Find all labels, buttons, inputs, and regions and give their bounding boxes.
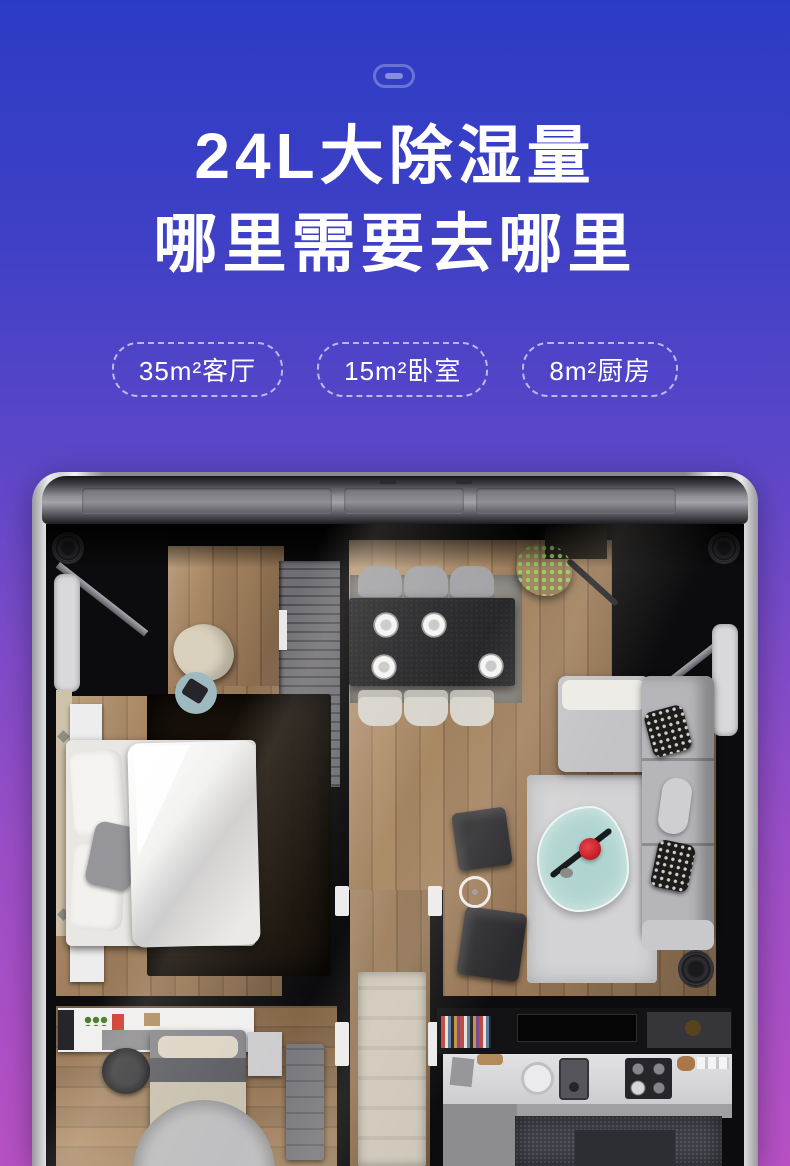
device-top-band	[42, 476, 748, 524]
floor-speaker-icon	[680, 952, 712, 986]
title-line-2: 哪里需要去哪里	[0, 200, 790, 288]
cutting-board	[477, 1054, 503, 1065]
ottoman	[457, 906, 528, 982]
badge-bedroom-area: 15m²卧室	[317, 342, 488, 397]
storage-bench	[286, 1044, 324, 1160]
promo-page: 24L大除湿量 哪里需要去哪里 35m²客厅 15m²卧室 8m²厨房	[0, 0, 790, 1166]
place-setting	[371, 654, 397, 680]
badge-kitchen-area: 8m²厨房	[522, 342, 678, 397]
counter-appliance	[559, 1058, 589, 1100]
bed2-fold	[150, 1058, 246, 1082]
place-setting	[373, 612, 399, 638]
tv-panel	[517, 1014, 637, 1042]
dining-chair	[404, 690, 448, 726]
handle-recess-right	[712, 624, 738, 736]
duvet-fold	[134, 745, 194, 857]
desk-plants	[84, 1016, 108, 1026]
nightstand-small	[248, 1032, 282, 1076]
bedroom-south-wall	[56, 996, 340, 1006]
dining-chair	[358, 690, 402, 726]
light-center	[472, 889, 478, 895]
band-panel	[82, 488, 332, 514]
gas-hob	[625, 1058, 672, 1099]
book-row	[441, 1016, 491, 1048]
place-setting	[421, 612, 447, 638]
door-jamb	[335, 1022, 349, 1066]
kitchen-island-mat	[515, 1116, 722, 1166]
apartment-floorplan-render	[32, 472, 758, 1166]
ceiling-light-ring	[459, 876, 491, 908]
door-jamb	[335, 886, 349, 916]
rug-item	[181, 678, 209, 705]
console-shelf	[647, 1012, 731, 1048]
kitchen-floor-side	[443, 1104, 517, 1166]
desk-red-item	[112, 1014, 124, 1030]
media-console-wall	[437, 1008, 732, 1054]
dining-chair	[450, 690, 494, 726]
desk-wood-box	[144, 1013, 160, 1026]
ceiling-shadow	[46, 524, 744, 568]
sofa-chaise	[558, 676, 650, 772]
sofa-cushion	[562, 680, 646, 710]
door-jamb	[428, 886, 442, 916]
shelf-plant	[685, 1020, 701, 1036]
area-badges: 35m²客厅 15m²卧室 8m²厨房	[0, 342, 790, 397]
coffee-table-glass	[537, 806, 629, 912]
badge-living-room-area: 35m²客厅	[112, 342, 283, 397]
dehumidifier-outline-icon	[373, 64, 415, 88]
decor-stone	[560, 868, 573, 878]
island-inner	[575, 1130, 675, 1166]
ottoman	[451, 807, 513, 872]
office-chair	[102, 1048, 150, 1094]
counter-box	[450, 1057, 475, 1087]
appliance-knob	[569, 1082, 579, 1092]
title-line-1: 24L大除湿量	[0, 112, 790, 200]
hall-runner-rug	[358, 972, 426, 1166]
icon-vent-bar	[385, 73, 403, 79]
handle-recess-left	[54, 574, 80, 692]
red-flowers	[579, 838, 601, 860]
sofa-armrest	[642, 920, 714, 950]
wood-jar	[677, 1056, 695, 1071]
apartment-interior	[46, 524, 744, 1166]
band-notch	[456, 479, 472, 484]
double-bed	[66, 740, 260, 950]
page-title: 24L大除湿量 哪里需要去哪里	[0, 112, 790, 288]
closet-door-trim	[279, 610, 287, 650]
living-south-wall	[430, 996, 732, 1008]
kitchen-sink	[521, 1062, 554, 1095]
kitchen-counter	[443, 1054, 732, 1104]
desk-shelf-items	[58, 1010, 74, 1050]
band-panel	[344, 488, 464, 514]
switch-plates	[697, 1057, 729, 1069]
place-setting	[478, 653, 504, 679]
bed2-pillow	[158, 1036, 238, 1058]
small-round-rug	[175, 672, 217, 714]
band-notch	[380, 479, 396, 484]
band-panel	[476, 488, 676, 514]
